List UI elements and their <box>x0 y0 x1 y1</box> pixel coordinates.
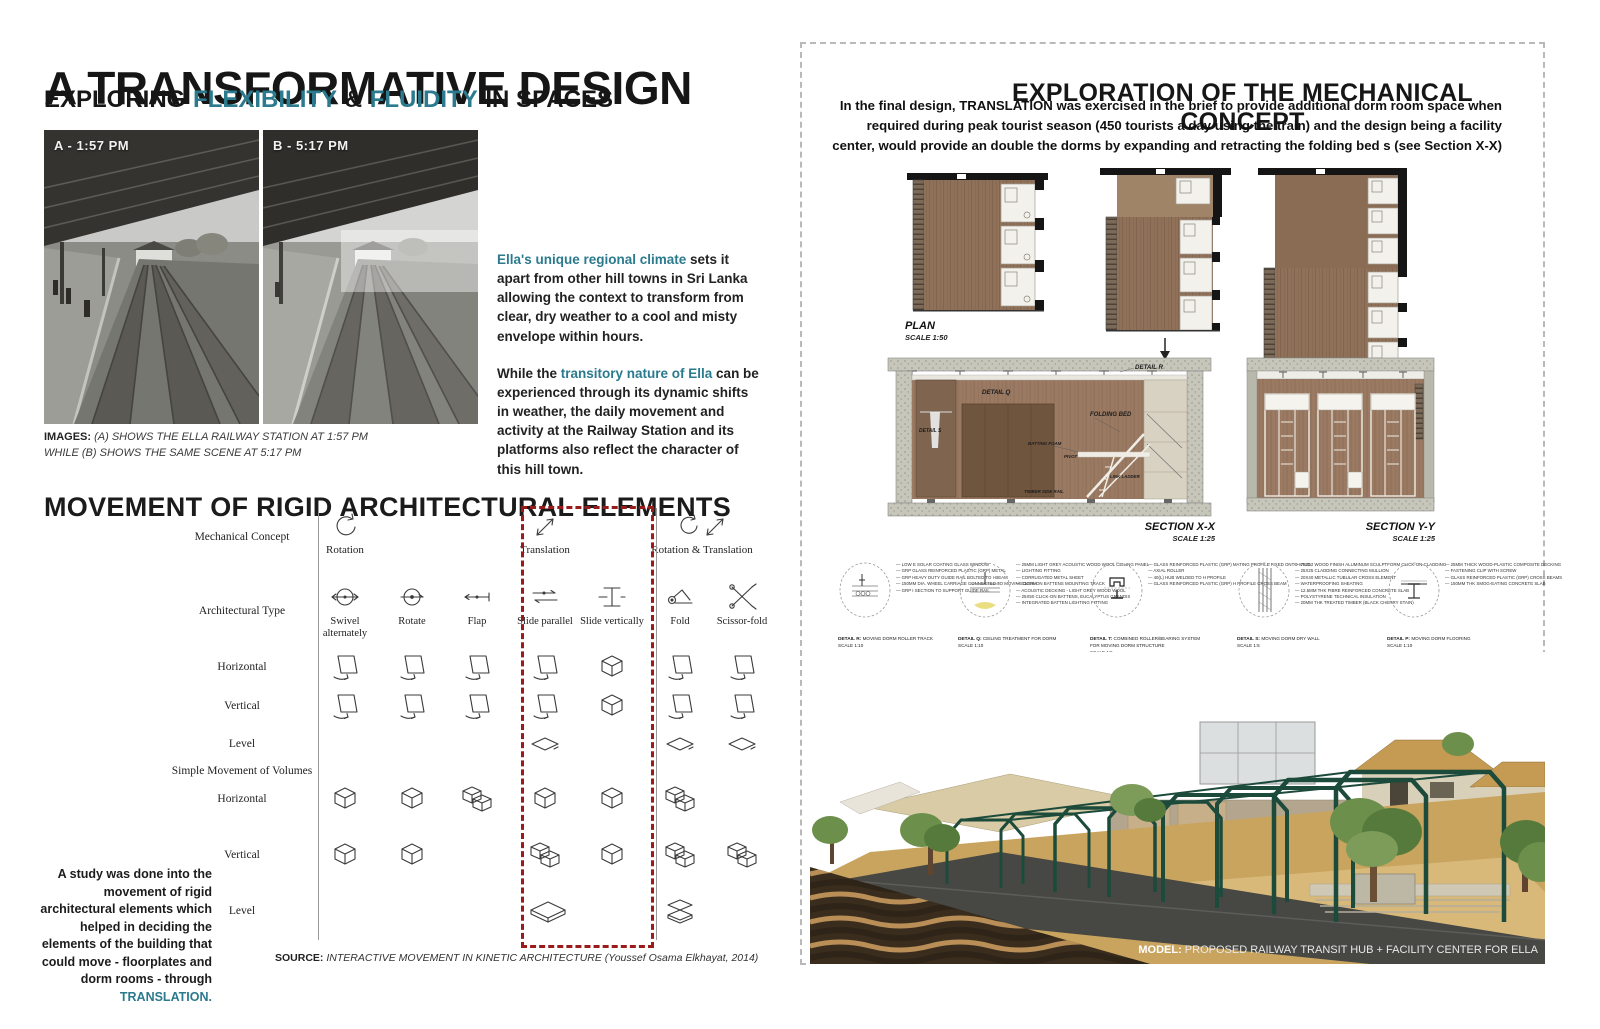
detail-diagram-icon <box>1090 560 1144 629</box>
cubes-diagram <box>725 840 759 877</box>
slabs-diagram <box>663 896 697 933</box>
railway-scene-a-illustration <box>44 130 259 424</box>
floor-plan-state-1 <box>905 173 1050 318</box>
subtitle-amp: & <box>345 86 362 113</box>
matrix-type-label: Rotate <box>377 616 447 628</box>
annotation-pivot: PIVOT <box>1064 454 1077 459</box>
matrix-row-label-vertical: Vertical <box>168 700 316 714</box>
scissor-fold-icon <box>725 582 759 617</box>
matrix-concept-label: Rotation <box>270 544 420 556</box>
source-note: SOURCE: INTERACTIVE MOVEMENT IN KINETIC … <box>275 952 758 964</box>
cube-diagram <box>395 840 429 875</box>
cubes-diagram <box>460 784 494 821</box>
rotation-translation-icon <box>674 512 730 547</box>
section-x-x-drawing: DETAIL Q DETAIL R DETAIL S FOLDING BED B… <box>882 352 1217 522</box>
page-subtitle: EXPLORINGFLEXIBILITY&FLUIDITYIN SPACES <box>44 86 621 114</box>
photo-b-time-label: B - 5:17 PM <box>273 138 349 153</box>
subtitle-pre: EXPLORING <box>44 86 185 113</box>
study-translation-highlight: TRANSLATION. <box>120 990 212 1004</box>
panel-diagram <box>395 691 429 726</box>
model-photo: MODEL: PROPOSED RAILWAY TRANSIT HUB + FA… <box>810 652 1545 965</box>
matrix-divider-right <box>656 508 657 940</box>
panel-diagram <box>460 652 494 687</box>
cube-diagram <box>328 784 362 819</box>
intro-paragraph-2: While the transitory nature of Ella can … <box>497 364 761 479</box>
floor-plan-state-2 <box>1098 168 1233 363</box>
matrix-row-label-level: Level <box>168 738 316 752</box>
panel-diagram <box>663 652 697 687</box>
annotation-detail-q: DETAIL Q <box>982 389 1010 396</box>
plan-label: PLANSCALE 1:50 <box>905 320 948 342</box>
detail-diagram-icon <box>958 560 1012 629</box>
floor-plan-state-3 <box>1256 168 1408 383</box>
annotation-detail-s: DETAIL S <box>919 428 942 434</box>
cube-diagram <box>395 784 429 819</box>
matrix-row-label-horizontal: Horizontal <box>168 661 316 675</box>
fold-icon <box>663 582 697 617</box>
annotation-folding-bed: FOLDING BED <box>1090 412 1132 418</box>
panel-diagram <box>395 652 429 687</box>
detail-notes: — 25MM THICK WOOD-PLASTIC COMPOSITE DECK… <box>1445 562 1562 588</box>
section-y-y-drawing <box>1243 352 1438 522</box>
study-note: A study was done into the movement of ri… <box>38 866 212 1006</box>
section-x-label: SECTION X-XSCALE 1:25 <box>1040 521 1215 543</box>
section-y-label: SECTION Y-YSCALE 1:25 <box>1310 521 1435 543</box>
rotation-icon <box>330 512 360 547</box>
photo-a-time-label: A - 1:57 PM <box>54 138 129 153</box>
cube-diagram <box>328 840 362 875</box>
slab-diagram <box>725 729 759 764</box>
matrix-divider-left <box>318 508 319 940</box>
panel-diagram <box>460 691 494 726</box>
swivel-icon <box>328 582 362 617</box>
detail-note-line: — 150MM THK SMOG-EATING CONCRETE SLAB <box>1445 581 1562 587</box>
photo-railway-b: B - 5:17 PM <box>263 130 478 424</box>
slab-diagram <box>663 729 697 764</box>
subtitle-post: IN SPACES <box>485 86 613 113</box>
detail-caption: DETAIL S: MOVING DORM DRY WALLSCALE 1:5 <box>1237 636 1357 650</box>
detail-caption: DETAIL R: MOVING DORM ROLLER TRACKSCALE … <box>838 636 958 650</box>
panel-diagram <box>725 691 759 726</box>
matrix-type-label: Flap <box>442 616 512 628</box>
matrix-row-label-vertical: Vertical <box>168 849 316 863</box>
photo-railway-a: A - 1:57 PM <box>44 130 259 424</box>
detail-diagram-icon <box>838 560 892 629</box>
annotation-detail-r: DETAIL R <box>1135 364 1163 371</box>
railway-scene-b-illustration <box>263 130 478 424</box>
translation-highlight-box <box>521 506 654 948</box>
cubes-diagram <box>663 840 697 877</box>
matrix-label-mechanical-concept: Mechanical Concept <box>168 531 316 545</box>
matrix-label-simple-movement-volumes: Simple Movement of Volumes <box>168 765 316 779</box>
detail-diagram-icon <box>1237 560 1291 629</box>
intro-text: Ella's unique regional climate sets it a… <box>497 250 761 497</box>
panel-diagram <box>725 652 759 687</box>
presentation-board: A TRANSFORMATIVE DESIGN EXPLORINGFLEXIBI… <box>0 0 1600 1029</box>
detail-caption: DETAIL P: MOVING DORM FLOORINGSCALE 1:10 <box>1387 636 1507 650</box>
panel-diagram <box>663 691 697 726</box>
annotation-batting-foam: BATTING FOAM <box>1028 441 1062 446</box>
detail-diagram-icon <box>1387 560 1441 629</box>
model-caption: MODEL: PROPOSED RAILWAY TRANSIT HUB + FA… <box>1138 944 1538 956</box>
annotation-link-ladder: LINK LADDER <box>1110 474 1141 479</box>
matrix-type-label: Scissor-fold <box>707 616 777 628</box>
detail-caption: DETAIL Q: CEILING TREATMENT FOR DORMSCAL… <box>958 636 1078 650</box>
panel-diagram <box>328 652 362 687</box>
panel-diagram <box>328 691 362 726</box>
flap-icon <box>460 582 494 617</box>
subtitle-fluidity: FLUIDITY <box>370 86 478 113</box>
matrix-label-architectural-type: Architectural Type <box>168 605 316 619</box>
cubes-diagram <box>663 784 697 821</box>
rotate-icon <box>395 582 429 617</box>
exploration-paragraph: In the final design, TRANSLATION was exe… <box>830 96 1502 155</box>
photos-caption-lead: IMAGES: <box>44 431 91 443</box>
photos-caption: IMAGES: (A) SHOWS THE ELLA RAILWAY STATI… <box>44 430 368 462</box>
subtitle-flexibility: FLEXIBILITY <box>193 86 337 113</box>
annotation-timber-side-rail: TIMBER SIDE RAIL <box>1024 489 1064 494</box>
intro-paragraph-1: Ella's unique regional climate sets it a… <box>497 250 761 346</box>
matrix-type-label: Swivel alternately <box>310 616 380 640</box>
matrix-row-label-horizontal: Horizontal <box>168 793 316 807</box>
